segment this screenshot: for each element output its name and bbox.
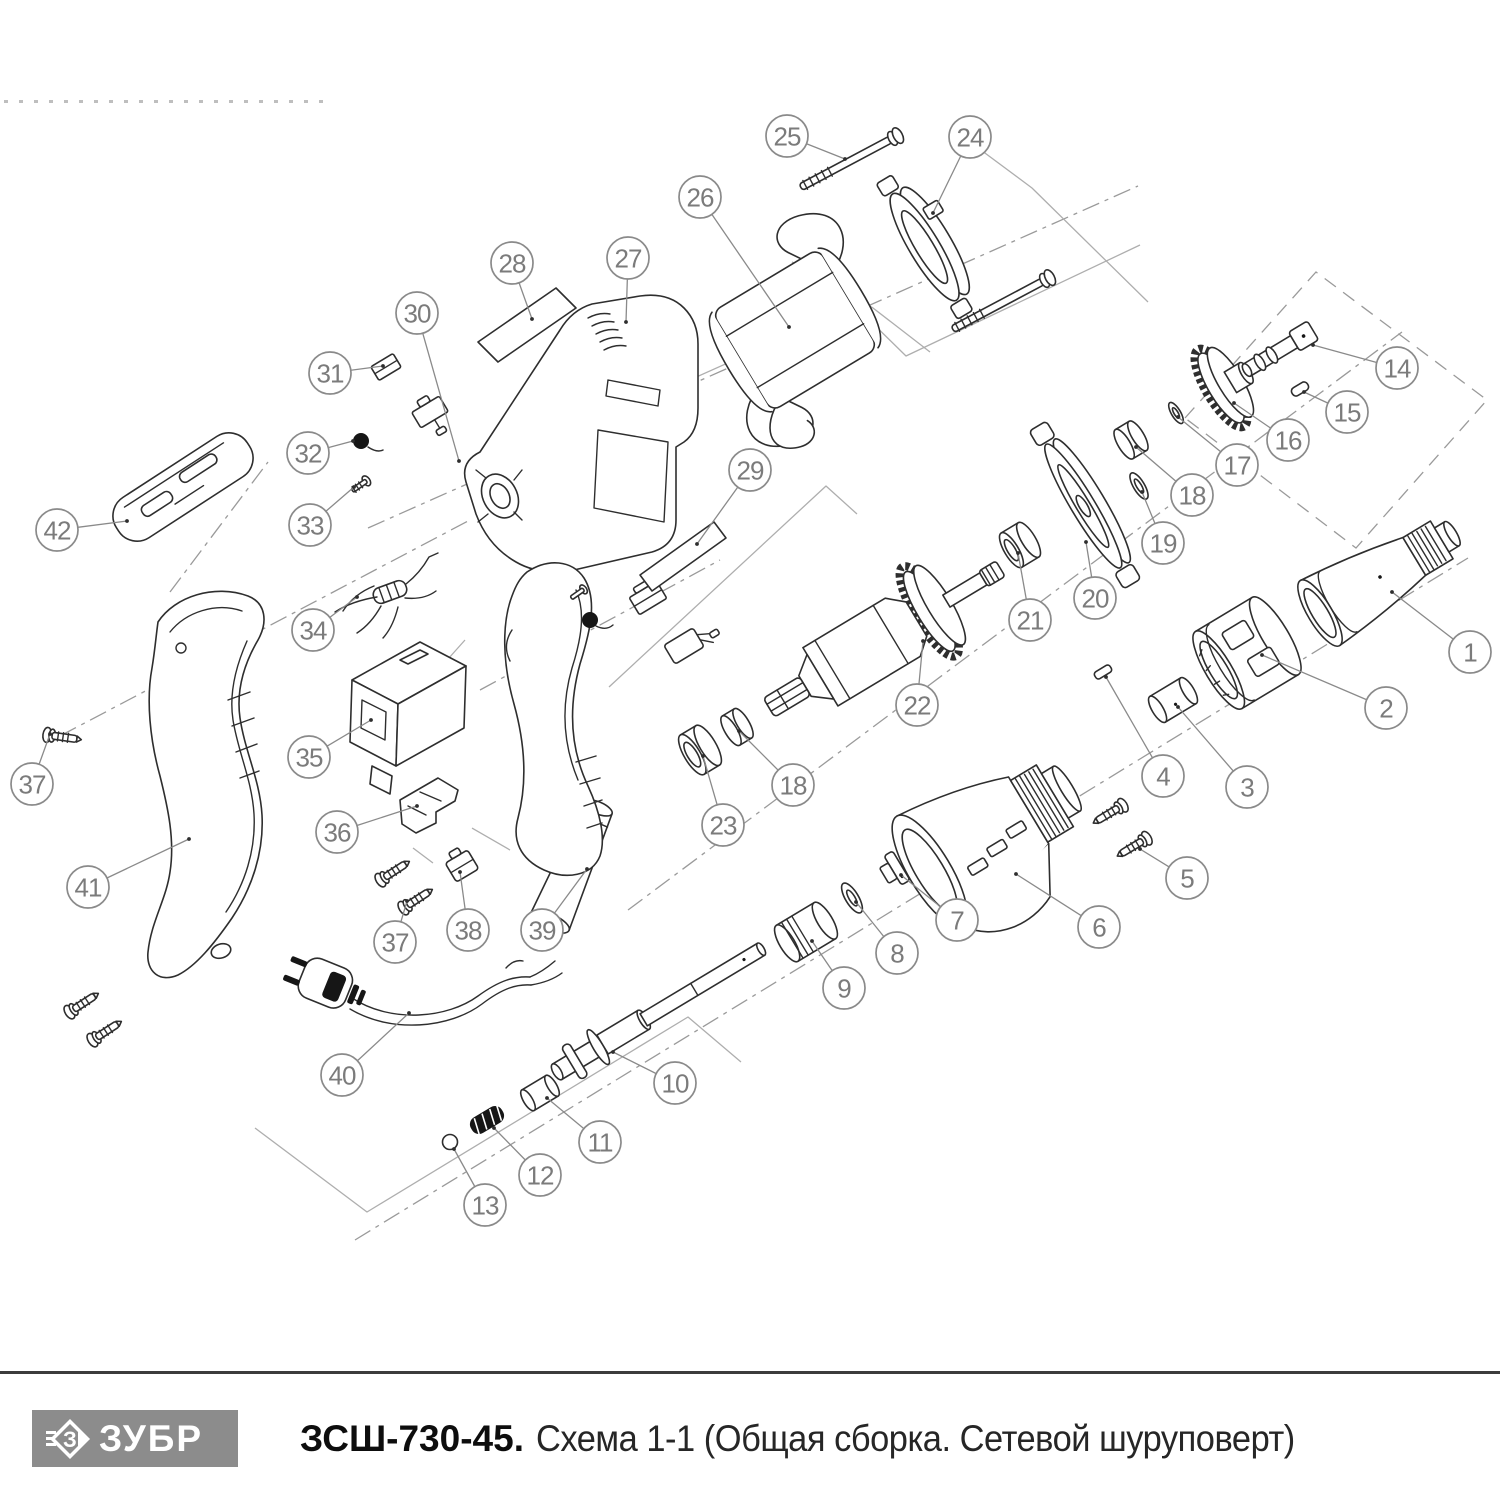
callout-8: 8 bbox=[854, 900, 918, 974]
part-top-cover bbox=[105, 424, 262, 549]
part-screw-pair-5 bbox=[1089, 797, 1154, 863]
part-pin-4 bbox=[1093, 664, 1113, 680]
svg-text:8: 8 bbox=[890, 938, 904, 968]
svg-text:31: 31 bbox=[317, 358, 344, 388]
svg-text:32: 32 bbox=[295, 438, 322, 468]
svg-text:27: 27 bbox=[615, 243, 642, 273]
svg-text:37: 37 bbox=[382, 927, 409, 957]
svg-text:9: 9 bbox=[837, 973, 851, 1003]
svg-text:13: 13 bbox=[472, 1190, 499, 1220]
part-clutch-sleeve bbox=[1184, 591, 1309, 716]
part-nose-cone bbox=[1290, 499, 1475, 652]
part-spring-12 bbox=[467, 1103, 507, 1137]
part-ball-13 bbox=[443, 1135, 458, 1150]
part-knob-32 bbox=[353, 433, 383, 451]
model-code: ЗСШ-730-45. bbox=[300, 1418, 524, 1460]
part-shaft-14 bbox=[1238, 321, 1318, 381]
callout-29: 29 bbox=[695, 449, 771, 546]
part-screw-pair-bl bbox=[62, 987, 126, 1049]
svg-text:15: 15 bbox=[1334, 397, 1361, 427]
svg-text:42: 42 bbox=[44, 515, 71, 545]
svg-text:35: 35 bbox=[296, 742, 323, 772]
svg-text:29: 29 bbox=[737, 455, 764, 485]
callout-5: 5 bbox=[1138, 847, 1208, 899]
svg-text:20: 20 bbox=[1082, 583, 1109, 613]
parts-layer bbox=[42, 126, 1475, 1150]
part-washer-8 bbox=[838, 880, 867, 916]
svg-text:33: 33 bbox=[297, 510, 324, 540]
part-screw-37a bbox=[42, 727, 82, 747]
callout-18: 18 bbox=[737, 729, 814, 806]
callout-40: 40 bbox=[321, 1011, 411, 1096]
diagram-title: ЗСШ-730-45. Схема 1-1 (Общая сборка. Сет… bbox=[300, 1410, 1352, 1467]
part-stator bbox=[667, 199, 927, 465]
part-cord-clamp bbox=[335, 553, 438, 638]
brand-name: ЗУБР bbox=[99, 1420, 203, 1457]
svg-text:37: 37 bbox=[19, 769, 46, 799]
svg-text:2: 2 bbox=[1379, 693, 1393, 723]
callout-18: 18 bbox=[1134, 445, 1213, 516]
svg-text:39: 39 bbox=[529, 915, 556, 945]
callout-38: 38 bbox=[447, 870, 489, 951]
part-switch bbox=[350, 642, 466, 794]
callout-25: 25 bbox=[766, 115, 847, 161]
svg-text:25: 25 bbox=[774, 121, 801, 151]
svg-text:17: 17 bbox=[1224, 450, 1251, 480]
svg-text:22: 22 bbox=[904, 690, 931, 720]
part-handle-half bbox=[148, 591, 264, 977]
svg-text:1: 1 bbox=[1463, 637, 1477, 667]
svg-text:26: 26 bbox=[687, 182, 714, 212]
part-slider-30 bbox=[408, 390, 457, 442]
svg-text:40: 40 bbox=[329, 1060, 356, 1090]
callout-12: 12 bbox=[492, 1126, 561, 1196]
brand-logo: З ЗУБР bbox=[32, 1410, 238, 1467]
part-washer-19 bbox=[1127, 470, 1152, 501]
part-capacitor bbox=[664, 618, 722, 666]
part-gear-16 bbox=[1185, 332, 1273, 434]
svg-text:7: 7 bbox=[950, 905, 964, 935]
svg-text:14: 14 bbox=[1384, 353, 1411, 383]
svg-text:4: 4 bbox=[1156, 761, 1170, 791]
artifact-marks bbox=[4, 100, 334, 103]
part-brush-plate bbox=[871, 161, 995, 322]
callout-1: 1 bbox=[1390, 590, 1491, 673]
schema-label: Схема 1-1 (Общая сборка. Сетевой шурупов… bbox=[536, 1418, 1295, 1460]
part-bracket bbox=[400, 778, 458, 833]
part-grip bbox=[505, 563, 603, 875]
callout-3: 3 bbox=[1176, 705, 1268, 808]
part-bearing-18l bbox=[717, 706, 757, 749]
svg-text:12: 12 bbox=[527, 1160, 554, 1190]
svg-text:18: 18 bbox=[780, 770, 807, 800]
exploded-diagram: 1234567891011121314151617181920212223242… bbox=[0, 0, 1500, 1371]
callout-13: 13 bbox=[452, 1147, 506, 1226]
part-key-15 bbox=[1290, 381, 1310, 398]
svg-text:5: 5 bbox=[1180, 863, 1194, 893]
part-cylinder-3 bbox=[1145, 675, 1201, 725]
callout-24: 24 bbox=[931, 116, 991, 215]
svg-text:3: 3 bbox=[1240, 772, 1254, 802]
svg-text:38: 38 bbox=[455, 915, 482, 945]
part-bearing-23 bbox=[674, 722, 727, 779]
svg-text:З: З bbox=[63, 1427, 77, 1452]
part-power-cord bbox=[279, 948, 562, 1025]
callout-37: 37 bbox=[11, 732, 53, 805]
callout-11: 11 bbox=[545, 1096, 621, 1163]
svg-text:6: 6 bbox=[1092, 912, 1106, 942]
svg-text:28: 28 bbox=[499, 248, 526, 278]
svg-text:30: 30 bbox=[404, 298, 431, 328]
callout-9: 9 bbox=[810, 939, 865, 1009]
svg-text:34: 34 bbox=[300, 615, 327, 645]
part-sleeve-11 bbox=[518, 1073, 562, 1113]
part-spindle-10 bbox=[543, 931, 774, 1091]
footer: З ЗУБР ЗСШ-730-45. Схема 1-1 (Общая сбор… bbox=[0, 1371, 1500, 1500]
callout-34: 34 bbox=[292, 595, 359, 651]
part-screw-33 bbox=[349, 474, 372, 495]
callout-32: 32 bbox=[287, 432, 355, 474]
callout-14: 14 bbox=[1311, 343, 1418, 389]
svg-text:41: 41 bbox=[75, 872, 102, 902]
svg-text:24: 24 bbox=[957, 122, 984, 152]
brand-icon: З bbox=[44, 1415, 92, 1463]
callout-30: 30 bbox=[396, 292, 461, 463]
callout-15: 15 bbox=[1302, 390, 1368, 433]
svg-text:36: 36 bbox=[324, 817, 351, 847]
svg-text:23: 23 bbox=[710, 810, 737, 840]
page: 1234567891011121314151617181920212223242… bbox=[0, 0, 1500, 1500]
svg-text:18: 18 bbox=[1179, 480, 1206, 510]
callout-33: 33 bbox=[289, 485, 356, 546]
callout-10: 10 bbox=[611, 1050, 696, 1104]
svg-text:19: 19 bbox=[1150, 528, 1177, 558]
svg-text:11: 11 bbox=[588, 1127, 614, 1157]
svg-text:16: 16 bbox=[1275, 425, 1302, 455]
svg-text:10: 10 bbox=[662, 1068, 689, 1098]
svg-text:21: 21 bbox=[1017, 605, 1044, 635]
part-sleeve-9 bbox=[770, 899, 842, 965]
